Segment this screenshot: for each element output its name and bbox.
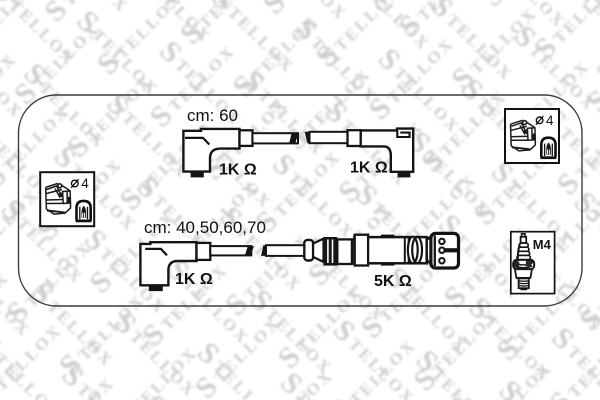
svg-text:cm: 60: cm: 60 [187, 106, 238, 125]
svg-text:1K Ω: 1K Ω [350, 159, 388, 176]
svg-text:cm: 40,50,60,70: cm: 40,50,60,70 [144, 218, 266, 237]
svg-text:M4: M4 [533, 237, 552, 252]
svg-text:5K Ω: 5K Ω [374, 273, 412, 290]
svg-text:1K Ω: 1K Ω [219, 162, 257, 179]
svg-text:1K Ω: 1K Ω [175, 271, 213, 288]
